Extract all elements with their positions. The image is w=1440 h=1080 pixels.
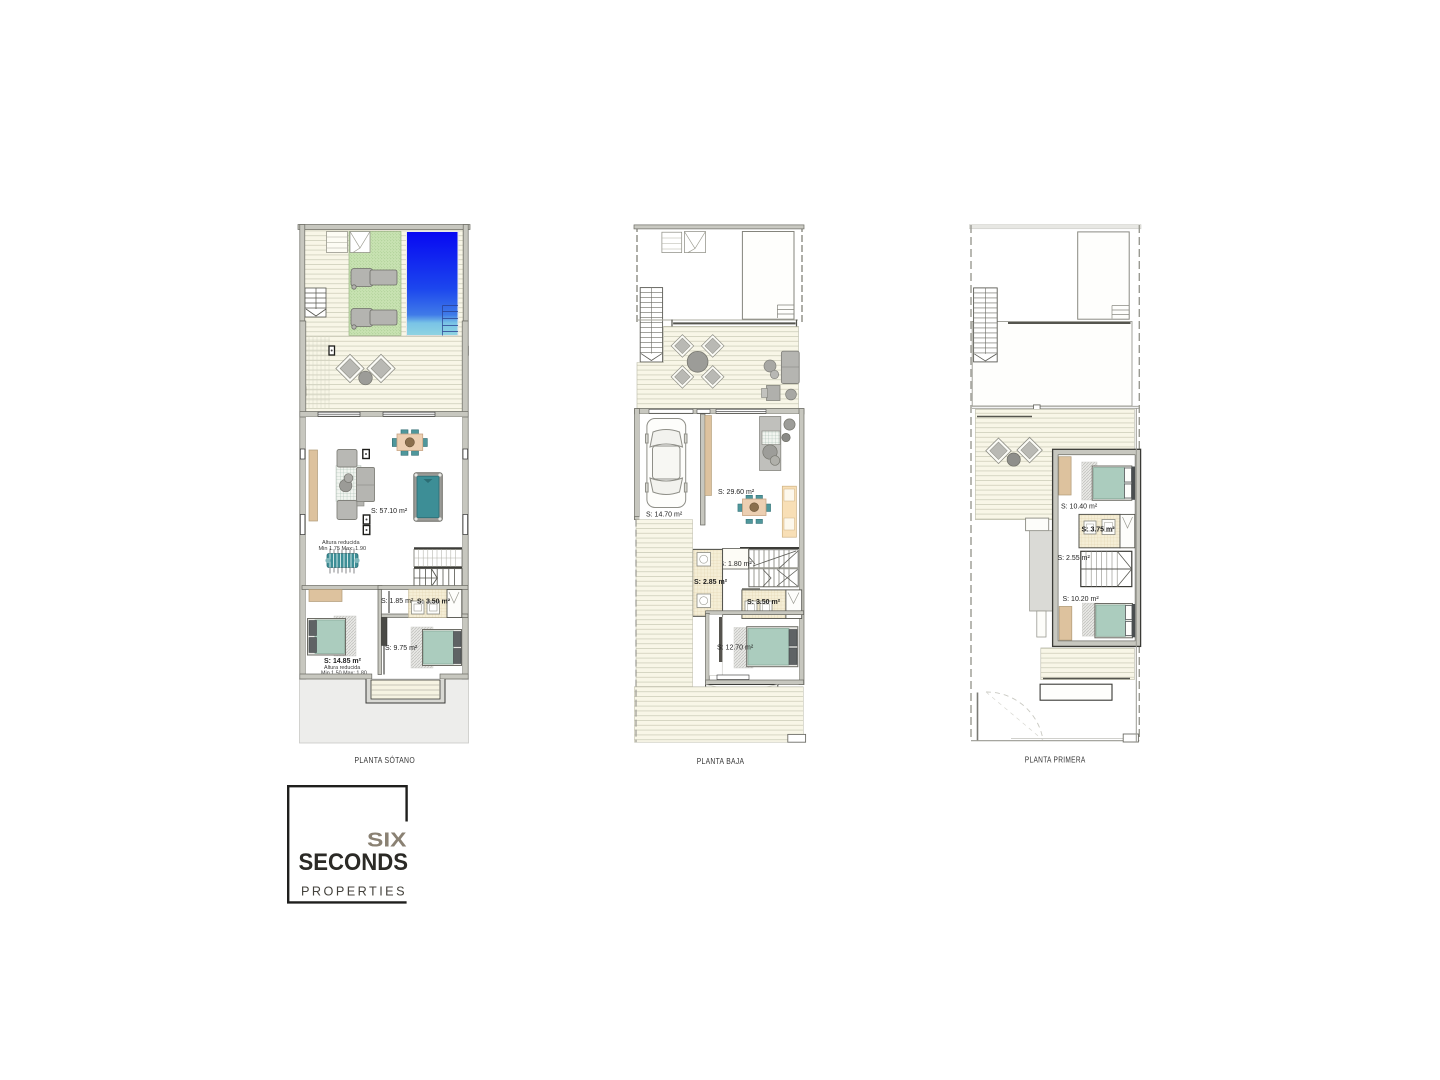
svg-text:S: 3.50 m²: S: 3.50 m²	[747, 599, 781, 606]
svg-text:PLANTA BAJA: PLANTA BAJA	[697, 756, 745, 766]
svg-text:S: 3.50 m²: S: 3.50 m²	[417, 599, 451, 606]
svg-text:S: 1.80 m²: S: 1.80 m²	[720, 561, 753, 568]
svg-text:S: 2.55 m²: S: 2.55 m²	[1058, 555, 1091, 562]
svg-text:S: 3.75 m²: S: 3.75 m²	[1082, 527, 1116, 534]
svg-text:SECONDS: SECONDS	[299, 850, 409, 876]
svg-text:S: 10.40 m²: S: 10.40 m²	[1061, 504, 1098, 511]
svg-text:S: 29.60 m²: S: 29.60 m²	[718, 489, 755, 496]
svg-text:S: 14.70 m²: S: 14.70 m²	[646, 512, 683, 519]
svg-text:SIX: SIX	[367, 828, 407, 851]
svg-text:S: 57.10 m²: S: 57.10 m²	[371, 508, 408, 515]
svg-text:PROPERTIES: PROPERTIES	[301, 883, 407, 898]
svg-text:PLANTA SÓTANO: PLANTA SÓTANO	[355, 755, 416, 765]
svg-text:S: 9.75 m²: S: 9.75 m²	[385, 645, 418, 652]
svg-text:S: 14.85 m²: S: 14.85 m²	[324, 658, 362, 665]
svg-text:PLANTA PRIMERA: PLANTA PRIMERA	[1025, 755, 1086, 765]
svg-text:S: 2.85 m²: S: 2.85 m²	[694, 579, 728, 586]
svg-text:S: 12.70 m²: S: 12.70 m²	[717, 645, 754, 652]
svg-text:S: 10.20 m²: S: 10.20 m²	[1063, 596, 1100, 603]
svg-text:S: 1.85 m²: S: 1.85 m²	[381, 598, 414, 605]
